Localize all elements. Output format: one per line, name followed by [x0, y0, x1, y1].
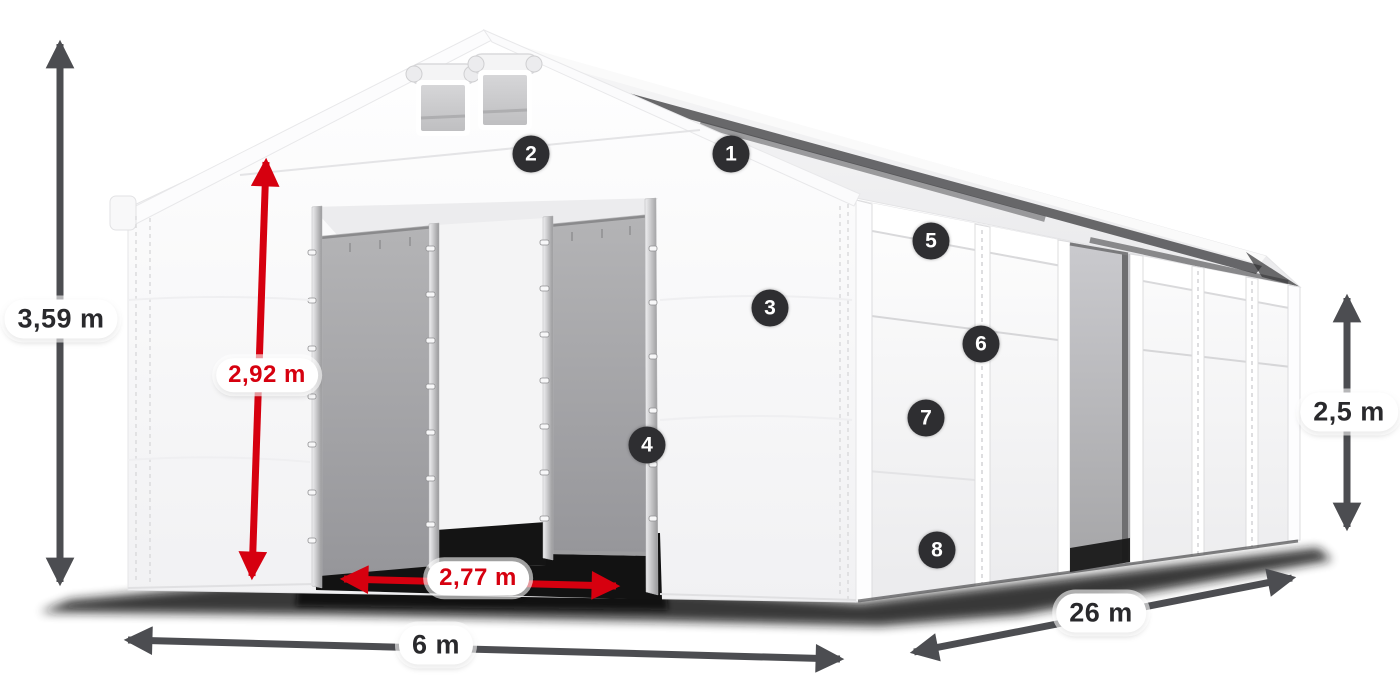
left-gate-panel	[320, 225, 434, 576]
callout-badge-6[interactable]: 6	[963, 326, 1000, 363]
eave-corner-block	[110, 196, 136, 230]
callout-badge-1[interactable]: 1	[713, 136, 750, 173]
callout-badge-7[interactable]: 7	[908, 400, 945, 437]
right-gate-panel	[548, 214, 652, 556]
callout-badge-4[interactable]: 4	[629, 427, 666, 464]
callout-badge-8[interactable]: 8	[919, 532, 956, 569]
dim-label-total-height: 3,59 m	[4, 299, 117, 338]
roof-vent-left	[406, 64, 480, 136]
dim-label-side-height: 2,5 m	[1300, 392, 1398, 431]
callout-badge-3[interactable]: 3	[752, 290, 789, 327]
front-opening-gap	[436, 218, 546, 568]
tent-illustration	[0, 0, 1400, 700]
tent-product-diagram: 3,59 m 2,92 m 2,77 m 6 m 26 m 2,5 m 1 2 …	[0, 0, 1400, 700]
dim-label-side-length: 26 m	[1056, 593, 1146, 632]
arrow-gable-width	[128, 640, 840, 659]
dim-label-entrance-width: 2,77 m	[427, 561, 529, 595]
side-door-opening	[1070, 242, 1130, 572]
dim-label-gable-width: 6 m	[399, 625, 473, 664]
callout-badge-2[interactable]: 2	[513, 136, 550, 173]
roof-vent-right	[468, 54, 542, 130]
dim-label-entrance-height: 2,92 m	[216, 358, 318, 392]
callout-badge-5[interactable]: 5	[913, 223, 950, 260]
